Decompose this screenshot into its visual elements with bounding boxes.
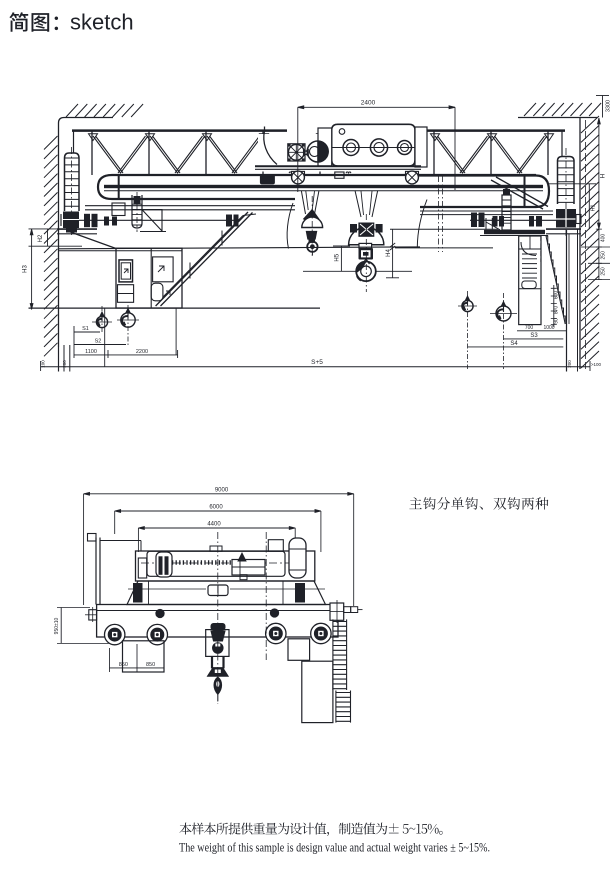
svg-text:H2: H2 bbox=[38, 234, 44, 242]
svg-text:250: 250 bbox=[601, 267, 607, 276]
svg-text:400: 400 bbox=[601, 234, 607, 243]
svg-text:200: 200 bbox=[567, 360, 572, 368]
svg-text:850: 850 bbox=[146, 662, 155, 668]
svg-text:870: 870 bbox=[554, 306, 560, 315]
svg-text:S+5: S+5 bbox=[311, 359, 323, 366]
svg-text:6000: 6000 bbox=[209, 505, 223, 511]
svg-text:3300: 3300 bbox=[606, 100, 612, 112]
svg-text:The weight of this sample is: The weight of this sample is design valu… bbox=[179, 841, 490, 855]
svg-text:1100: 1100 bbox=[85, 349, 97, 355]
svg-text:90: 90 bbox=[554, 318, 560, 324]
svg-text:250: 250 bbox=[601, 251, 607, 260]
svg-text:1000: 1000 bbox=[543, 325, 554, 331]
svg-text:>100: >100 bbox=[591, 362, 602, 367]
svg-text:S3: S3 bbox=[530, 333, 538, 339]
svg-text:H3: H3 bbox=[23, 265, 29, 273]
svg-text:S1: S1 bbox=[82, 326, 89, 332]
svg-text:850: 850 bbox=[119, 662, 128, 668]
svg-text:S2: S2 bbox=[95, 339, 102, 345]
svg-text:4400: 4400 bbox=[207, 522, 221, 528]
svg-text:H: H bbox=[600, 173, 607, 178]
svg-text:H5: H5 bbox=[335, 253, 341, 261]
svg-text:700: 700 bbox=[525, 325, 534, 331]
svg-text:950±10: 950±10 bbox=[54, 617, 60, 634]
svg-text:2400: 2400 bbox=[361, 100, 376, 107]
svg-text:H1: H1 bbox=[591, 204, 597, 211]
svg-text:2200: 2200 bbox=[136, 349, 148, 355]
svg-text:S4: S4 bbox=[510, 341, 518, 347]
svg-text:9000: 9000 bbox=[215, 488, 229, 494]
svg-text:sketch: sketch bbox=[70, 10, 134, 35]
svg-text:100: 100 bbox=[41, 360, 46, 368]
